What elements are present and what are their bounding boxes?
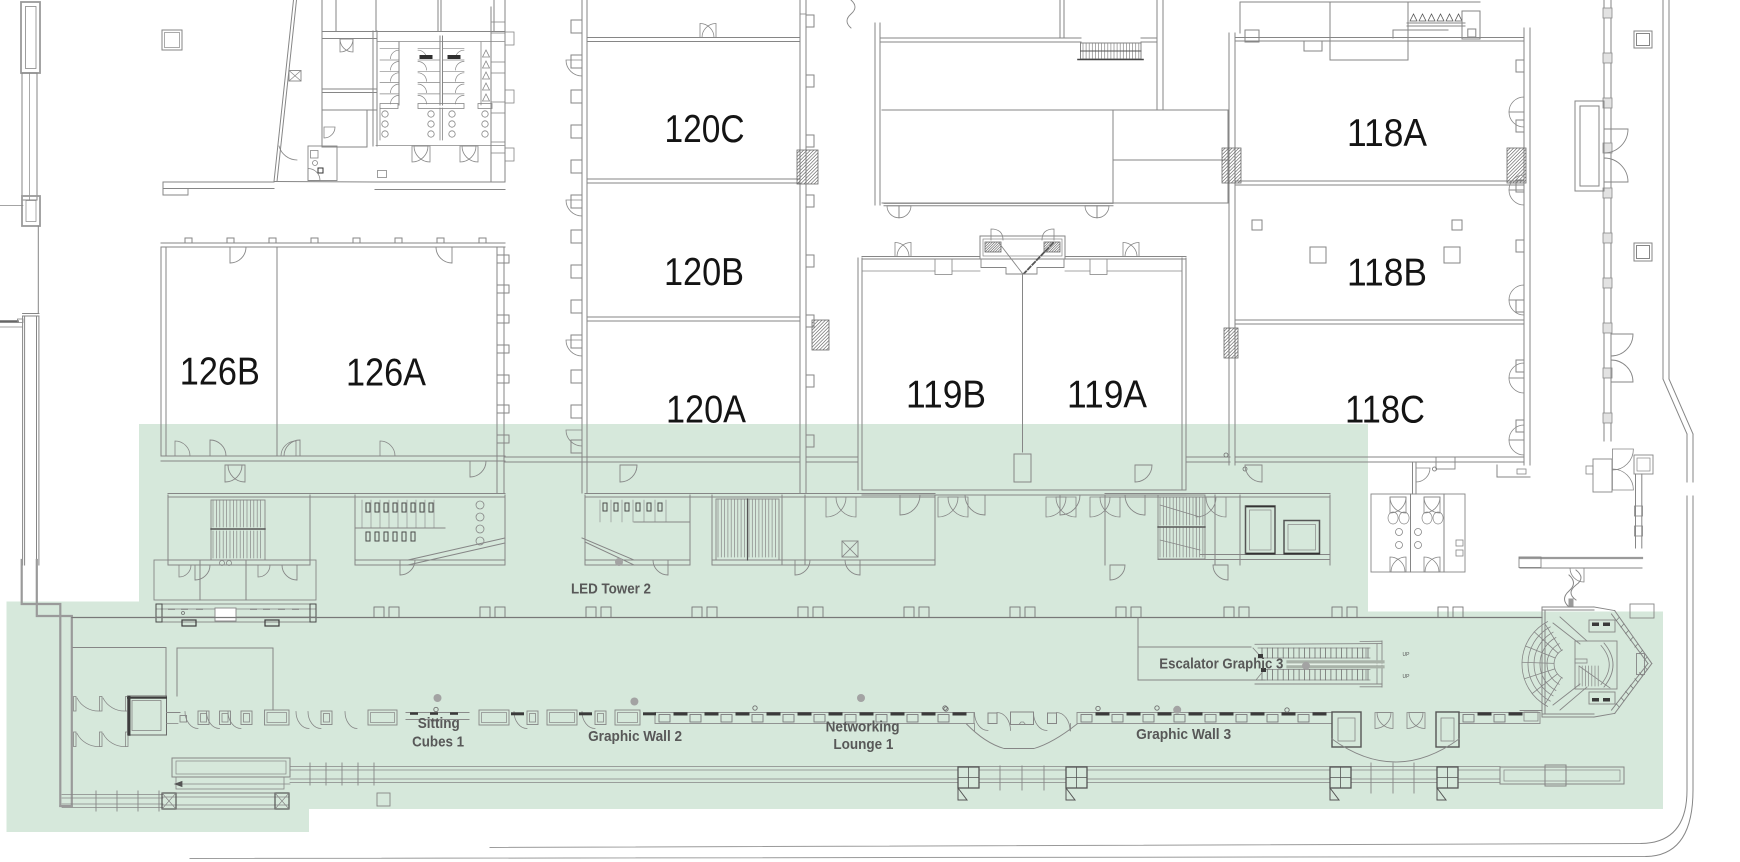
svg-text:Graphic Wall 2: Graphic Wall 2 — [588, 728, 682, 745]
svg-text:UP: UP — [1403, 652, 1411, 658]
svg-text:119B: 119B — [906, 374, 986, 417]
svg-text:120B: 120B — [664, 251, 744, 294]
svg-text:118C: 118C — [1345, 389, 1425, 432]
svg-text:126A: 126A — [346, 351, 426, 394]
svg-text:118A: 118A — [1347, 112, 1427, 155]
svg-text:UP: UP — [1403, 674, 1411, 680]
svg-text:119A: 119A — [1067, 374, 1147, 417]
svg-text:120A: 120A — [666, 389, 746, 432]
svg-text:Networking: Networking — [826, 719, 900, 736]
svg-text:Escalator Graphic 3: Escalator Graphic 3 — [1159, 655, 1283, 672]
svg-text:LED Tower 2: LED Tower 2 — [571, 580, 651, 597]
svg-text:Cubes 1: Cubes 1 — [412, 733, 464, 750]
svg-text:126B: 126B — [180, 351, 260, 394]
svg-text:Graphic Wall 3: Graphic Wall 3 — [1136, 726, 1231, 743]
svg-text:Sitting: Sitting — [418, 715, 460, 732]
svg-text:Lounge 1: Lounge 1 — [833, 736, 893, 753]
svg-text:118B: 118B — [1347, 251, 1427, 294]
svg-text:120C: 120C — [665, 108, 745, 151]
